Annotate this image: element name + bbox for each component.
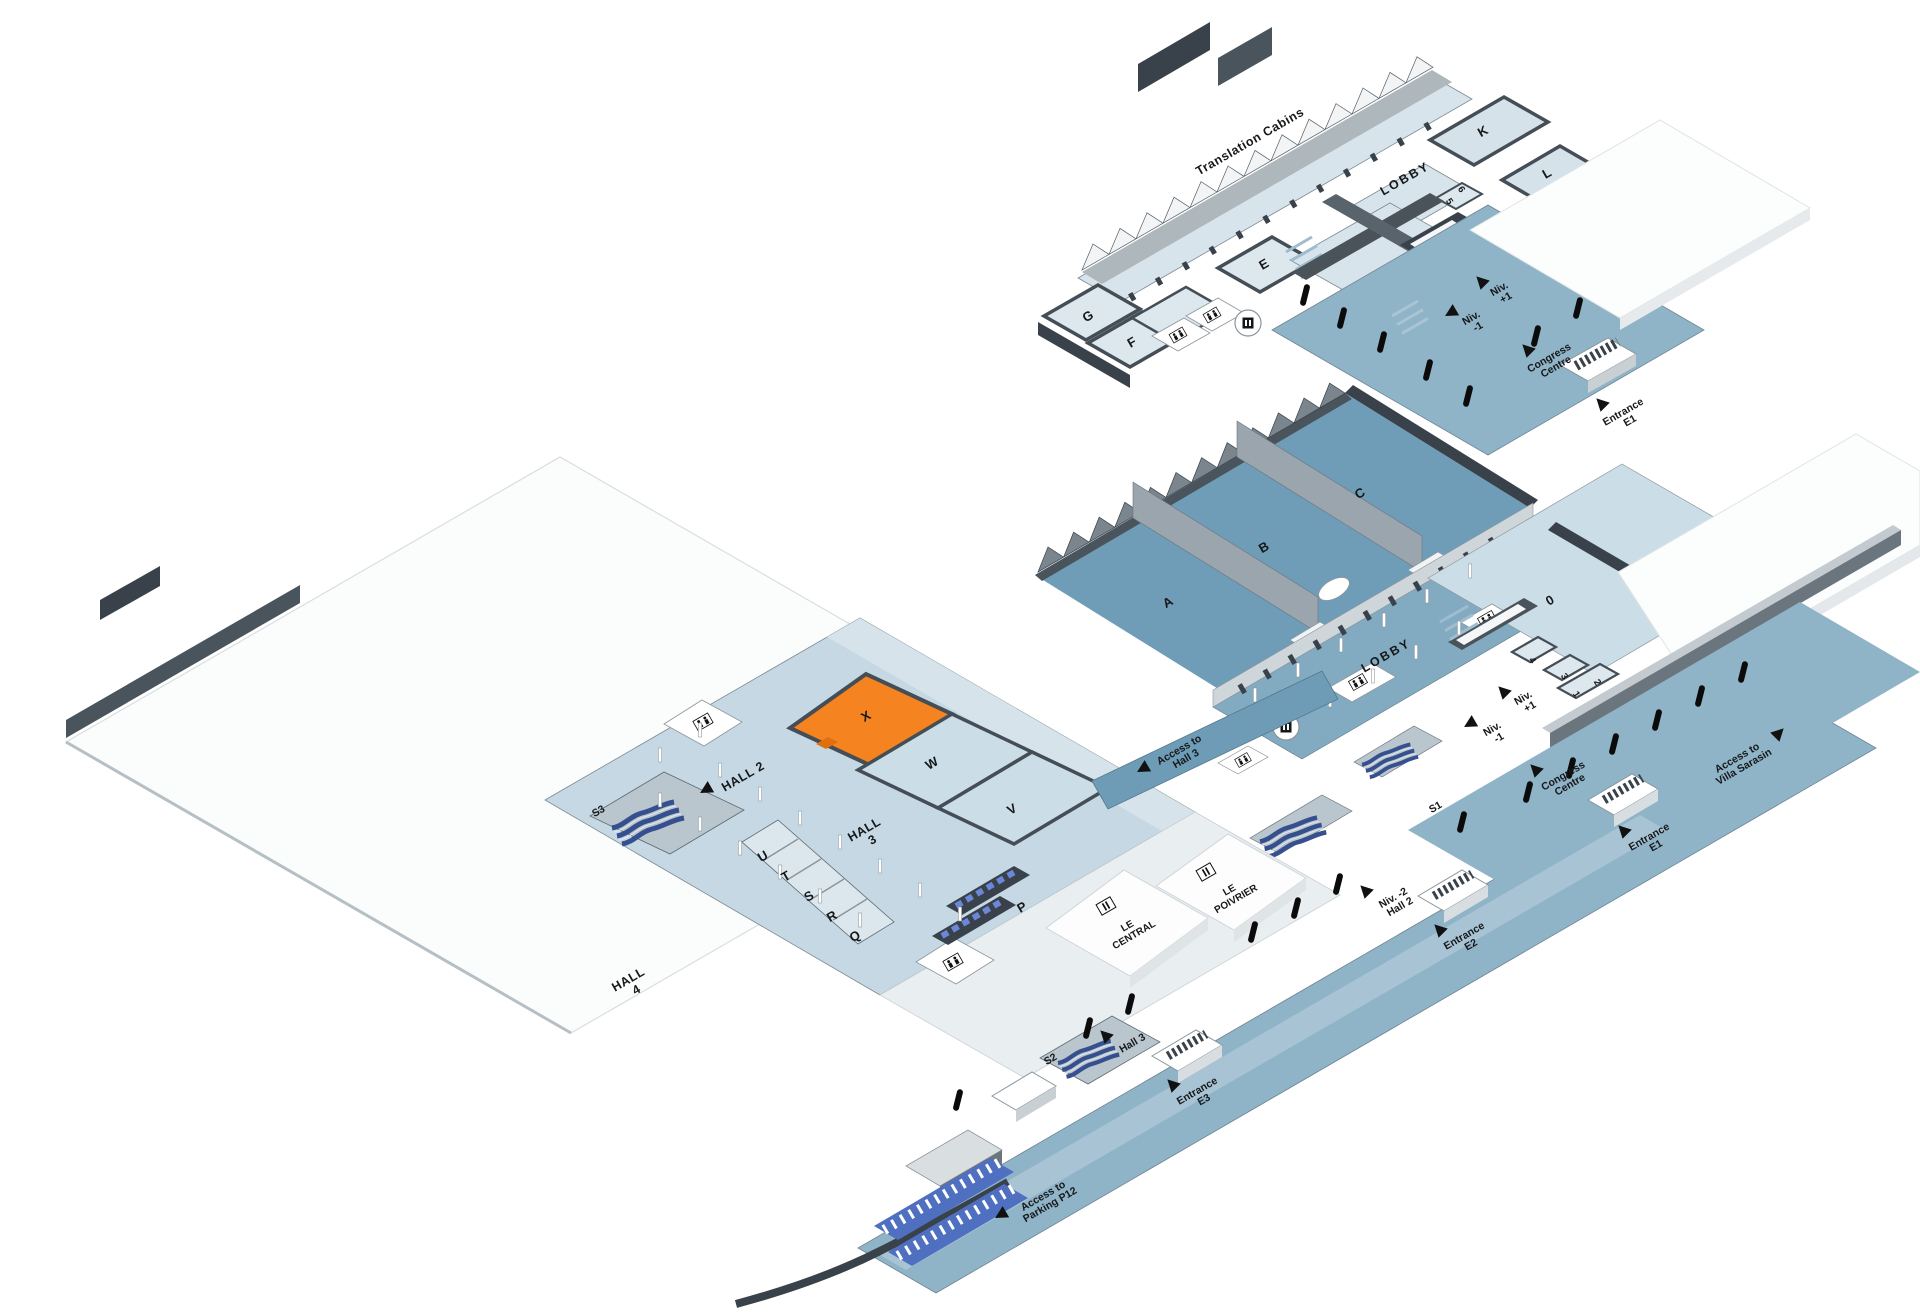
post [1414, 645, 1417, 659]
hall4-roof-block [100, 566, 160, 620]
elevator-icon[interactable] [1235, 310, 1261, 336]
down-arrow-icon [1461, 715, 1478, 733]
post [1468, 564, 1471, 578]
up-arrow-icon [1494, 682, 1512, 700]
niv-minus1-label: Niv. -1 [1481, 718, 1511, 749]
tram-terminal [736, 1130, 1028, 1304]
post [738, 841, 741, 855]
parking-kiosk [992, 1072, 1056, 1122]
up-arrow-icon [1356, 881, 1374, 899]
post [878, 859, 881, 873]
upper-level-building: Translation Cabins LOBBY K L 6 5 E G F N… [1038, 22, 1810, 455]
post [838, 835, 841, 849]
upper-entrance-e1-label: Entrance E1 [1601, 394, 1654, 438]
post [858, 913, 861, 927]
niv-plus1-label: Niv. +1 [1512, 687, 1542, 718]
post [718, 763, 721, 777]
upper-roof-wall [1138, 22, 1210, 92]
post [918, 883, 921, 897]
post [1296, 663, 1299, 677]
post [1425, 589, 1428, 603]
post [698, 817, 701, 831]
upper-roof-wall [1218, 27, 1272, 86]
post [798, 811, 801, 825]
post [1382, 613, 1385, 627]
post [1457, 621, 1460, 635]
post [1253, 688, 1256, 702]
post [958, 907, 961, 921]
kiosk-top [992, 1072, 1056, 1110]
post [658, 793, 661, 807]
niv-minus2-hall2-label: Niv. -2 Hall 2 [1377, 884, 1418, 921]
post [818, 889, 821, 903]
post [698, 723, 701, 737]
post [658, 748, 661, 762]
venue-floorplan: Translation Cabins LOBBY K L 6 5 E G F N… [0, 0, 1920, 1316]
post [758, 787, 761, 801]
post [1339, 638, 1342, 652]
floorplan-canvas: Translation Cabins LOBBY K L 6 5 E G F N… [0, 0, 1920, 1316]
pillar [1299, 284, 1310, 307]
pillar [952, 1089, 963, 1112]
pillar [1332, 873, 1343, 896]
entrance-arrow-icon [1592, 394, 1610, 412]
